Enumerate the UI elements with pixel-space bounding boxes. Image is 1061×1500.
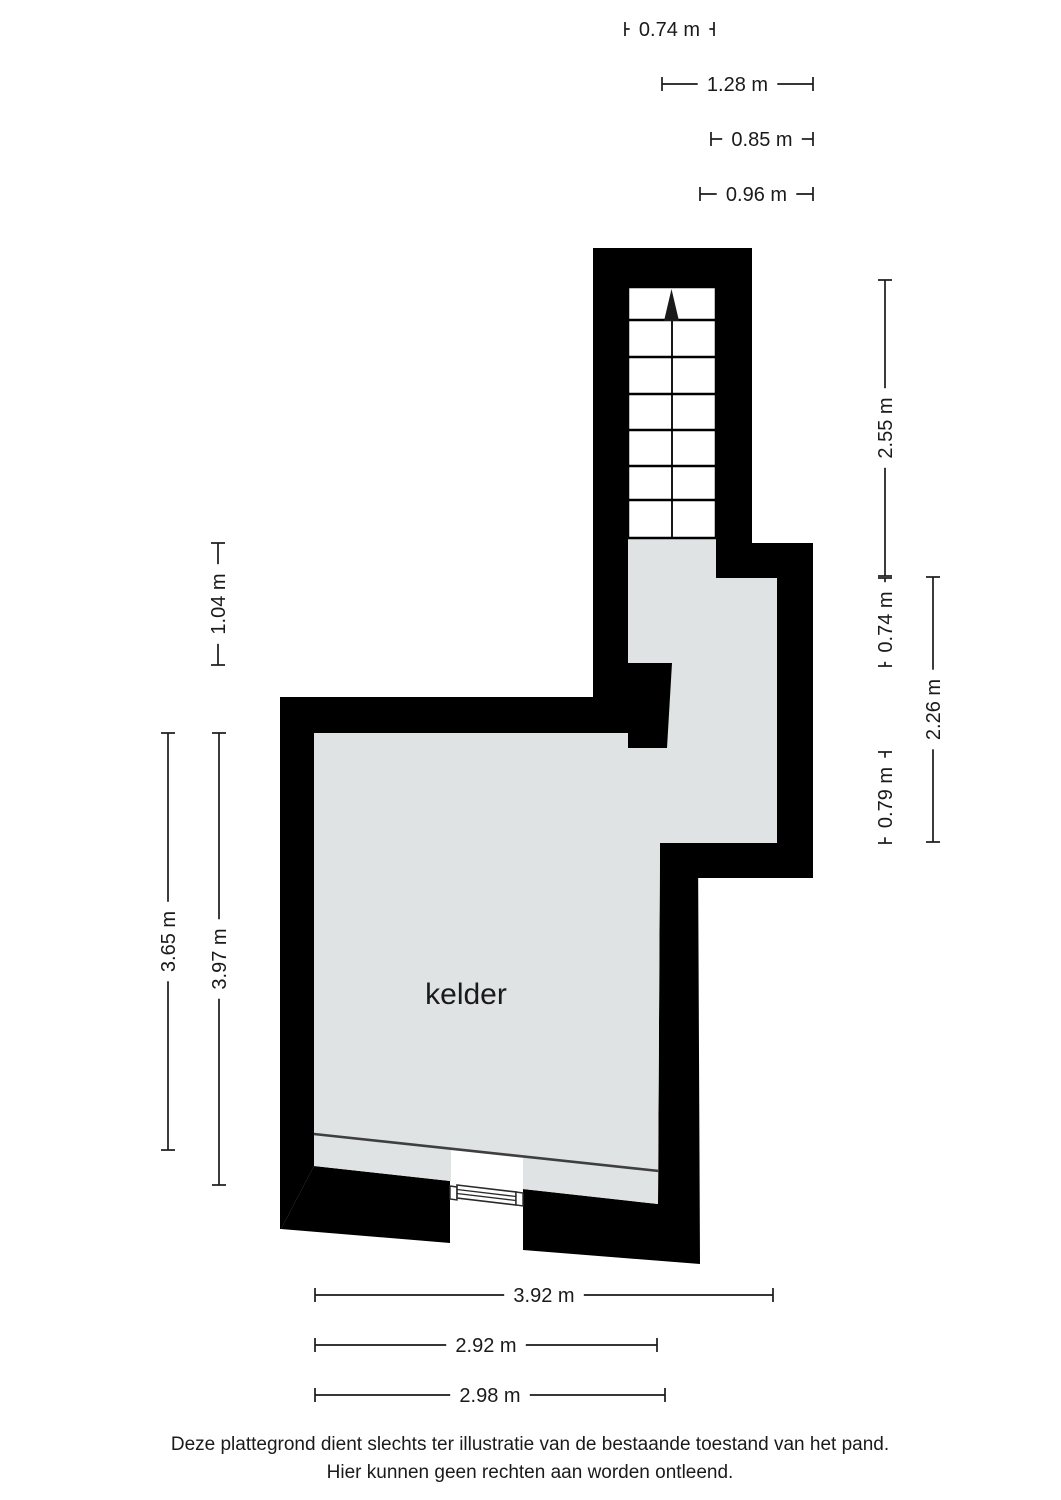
dim-label: 2.26 m bbox=[923, 679, 945, 740]
dim-right-074: 0.74 m bbox=[875, 578, 897, 666]
dim-label: 0.96 m bbox=[726, 184, 787, 206]
dim-top-074: 0.74 m bbox=[625, 19, 714, 41]
bottom-opening bbox=[450, 1150, 523, 1251]
dim-label: 0.79 m bbox=[875, 767, 897, 828]
floorplan-page: kelder 0.74 m1.28 m0.85 m0.96 m1.04 m3.6… bbox=[0, 0, 1061, 1500]
dim-bottom-392: 3.92 m bbox=[315, 1285, 773, 1307]
dim-label: 0.74 m bbox=[875, 591, 897, 652]
dim-right-079: 0.79 m bbox=[875, 752, 897, 843]
floorplan-svg: kelder 0.74 m1.28 m0.85 m0.96 m1.04 m3.6… bbox=[0, 0, 1061, 1500]
footer-line-1: Deze plattegrond dient slechts ter illus… bbox=[171, 1434, 889, 1455]
dim-label: 3.92 m bbox=[513, 1285, 574, 1307]
dim-right-226: 2.26 m bbox=[923, 577, 945, 842]
dim-left-397: 3.97 m bbox=[209, 733, 231, 1185]
dim-label: 1.04 m bbox=[208, 573, 230, 634]
room-label: kelder bbox=[425, 978, 507, 1011]
footer-line-2: Hier kunnen geen rechten aan worden ontl… bbox=[327, 1462, 734, 1483]
wall-kelder-left bbox=[280, 697, 314, 1229]
footer: Deze plattegrond dient slechts ter illus… bbox=[171, 1434, 889, 1483]
dim-left-104: 1.04 m bbox=[208, 543, 230, 665]
dim-left-365: 3.65 m bbox=[158, 733, 180, 1150]
staircase bbox=[628, 287, 716, 538]
dim-label: 1.28 m bbox=[707, 74, 768, 96]
dim-label: 3.65 m bbox=[158, 911, 180, 972]
dim-label: 0.85 m bbox=[731, 129, 792, 151]
dim-label: 2.55 m bbox=[875, 397, 897, 458]
dim-label: 0.74 m bbox=[639, 19, 700, 41]
window-cap-right bbox=[516, 1192, 523, 1206]
dim-bottom-298: 2.98 m bbox=[315, 1385, 665, 1407]
wall-stairwell-left bbox=[593, 248, 628, 733]
wall-outer-right bbox=[777, 543, 813, 878]
dim-label: 3.97 m bbox=[209, 928, 231, 989]
dim-label: 2.92 m bbox=[455, 1335, 516, 1357]
wall-stairwell-right bbox=[716, 287, 752, 578]
dim-top-096: 0.96 m bbox=[700, 184, 813, 206]
dim-top-128: 1.28 m bbox=[662, 74, 813, 96]
wall-corridor-chunk bbox=[628, 663, 672, 748]
dim-right-255: 2.55 m bbox=[875, 280, 897, 576]
window-cap-left bbox=[450, 1186, 457, 1200]
dim-top-085: 0.85 m bbox=[711, 129, 813, 151]
wall-kelder-top bbox=[280, 697, 629, 733]
dim-label: 2.98 m bbox=[459, 1385, 520, 1407]
dim-bottom-292: 2.92 m bbox=[315, 1335, 657, 1357]
